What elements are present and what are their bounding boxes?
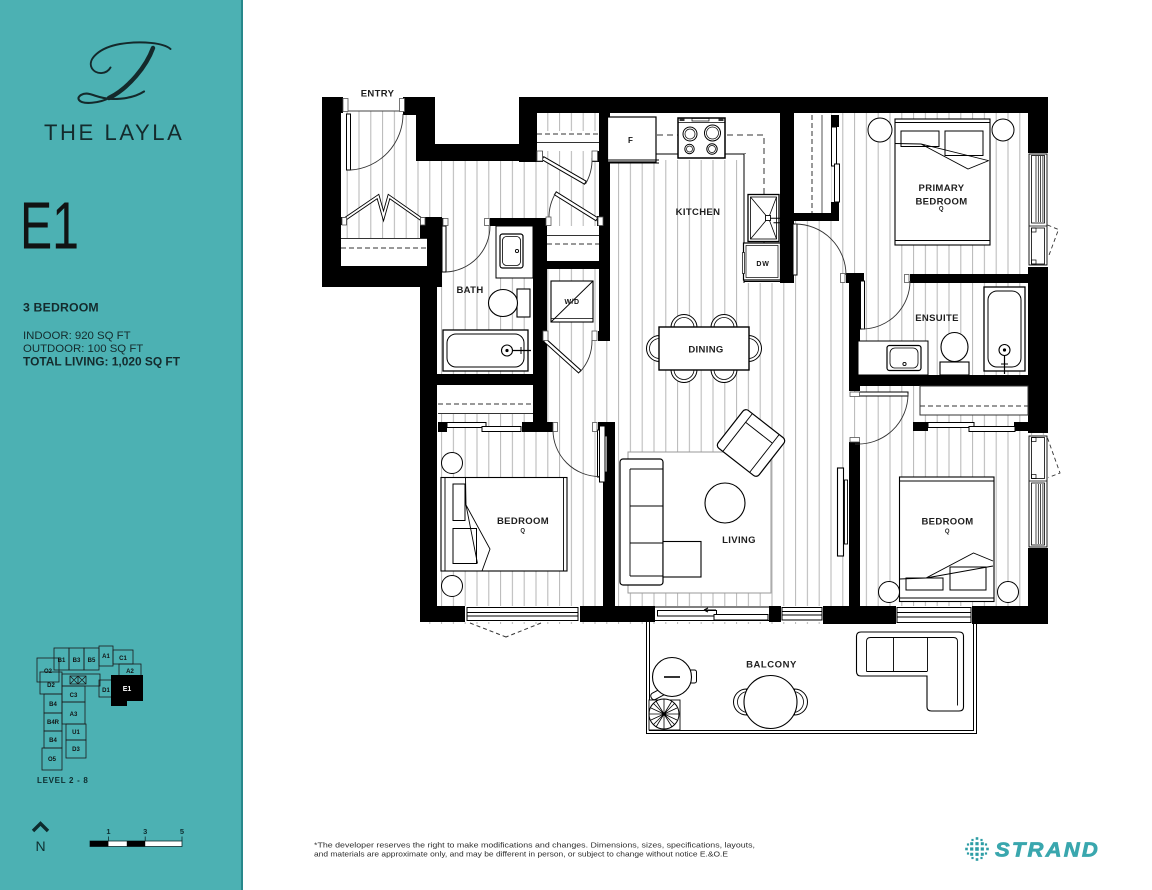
svg-text:TOTAL LIVING: 1,020 SQ FT: TOTAL LIVING: 1,020 SQ FT: [23, 354, 181, 368]
svg-text:D1: D1: [102, 688, 110, 694]
svg-text:THE LAYLA: THE LAYLA: [44, 120, 184, 145]
svg-text:B4R: B4R: [47, 720, 60, 726]
svg-text:INDOOR: 920 SQ FT: INDOOR: 920 SQ FT: [23, 330, 131, 342]
svg-text:N: N: [35, 838, 45, 854]
svg-text:B5: B5: [88, 658, 96, 664]
svg-text:LEVEL 2 - 8: LEVEL 2 - 8: [37, 776, 89, 785]
svg-text:A1: A1: [102, 654, 110, 660]
svg-text:Q: Q: [939, 207, 944, 213]
svg-text:BEDROOM: BEDROOM: [497, 516, 549, 527]
svg-text:F: F: [628, 136, 634, 145]
svg-text:E1: E1: [123, 686, 132, 693]
svg-text:B1: B1: [58, 658, 66, 664]
svg-text:STRAND: STRAND: [995, 840, 1100, 862]
svg-text:*The developer reserves the ri: *The developer reserves the right to mak…: [314, 841, 755, 850]
svg-text:B3: B3: [73, 658, 81, 664]
svg-text:DINING: DINING: [688, 345, 723, 356]
svg-text:OUTDOOR: 100 SQ FT: OUTDOOR: 100 SQ FT: [23, 343, 143, 355]
svg-text:C1: C1: [119, 656, 127, 662]
svg-text:ENSUITE: ENSUITE: [915, 313, 959, 324]
svg-text:E1: E1: [20, 189, 79, 264]
svg-text:BATH: BATH: [456, 285, 483, 296]
svg-text:B4: B4: [49, 702, 57, 708]
svg-text:A3: A3: [70, 712, 78, 718]
svg-text:DW: DW: [756, 261, 769, 268]
svg-text:3 BEDROOM: 3 BEDROOM: [23, 300, 99, 314]
svg-text:U1: U1: [72, 730, 80, 736]
svg-text:5: 5: [180, 827, 184, 836]
svg-text:O5: O5: [48, 757, 57, 763]
svg-text:LIVING: LIVING: [722, 535, 756, 546]
svg-text:BALCONY: BALCONY: [746, 660, 797, 671]
svg-text:Q: Q: [945, 529, 950, 535]
svg-text:B4: B4: [49, 738, 57, 744]
svg-text:KITCHEN: KITCHEN: [676, 207, 721, 218]
svg-text:ENTRY: ENTRY: [361, 89, 395, 100]
svg-text:Q: Q: [520, 529, 525, 535]
svg-text:A2: A2: [126, 669, 134, 675]
svg-text:D2: D2: [47, 683, 55, 689]
svg-text:C3: C3: [70, 693, 78, 699]
svg-text:W/D: W/D: [564, 299, 579, 306]
svg-text:1: 1: [106, 827, 110, 836]
svg-text:3: 3: [143, 827, 147, 836]
svg-text:D3: D3: [72, 747, 80, 753]
svg-text:and materials are approximate: and materials are approximate only, and …: [314, 850, 728, 859]
svg-text:BEDROOM: BEDROOM: [921, 517, 973, 528]
svg-text:PRIMARY: PRIMARY: [919, 183, 965, 194]
